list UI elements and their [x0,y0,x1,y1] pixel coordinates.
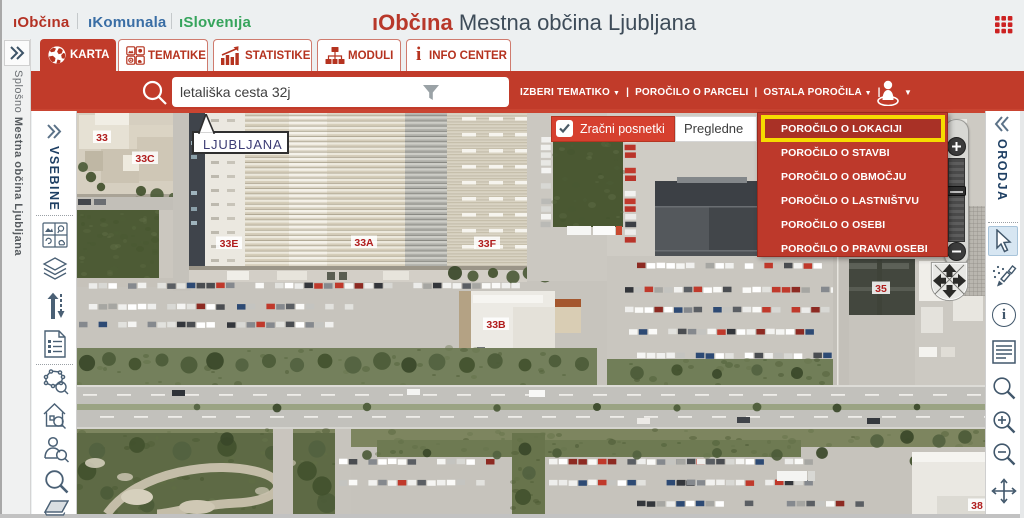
svg-text:35: 35 [875,283,887,295]
svg-text:33C: 33C [135,153,155,165]
svg-text:33: 33 [96,132,108,144]
svg-text:38: 38 [971,500,983,512]
svg-text:33E: 33E [220,238,239,250]
svg-text:33A: 33A [354,237,374,249]
svg-text:33F: 33F [478,238,497,250]
svg-text:33B: 33B [486,319,506,331]
